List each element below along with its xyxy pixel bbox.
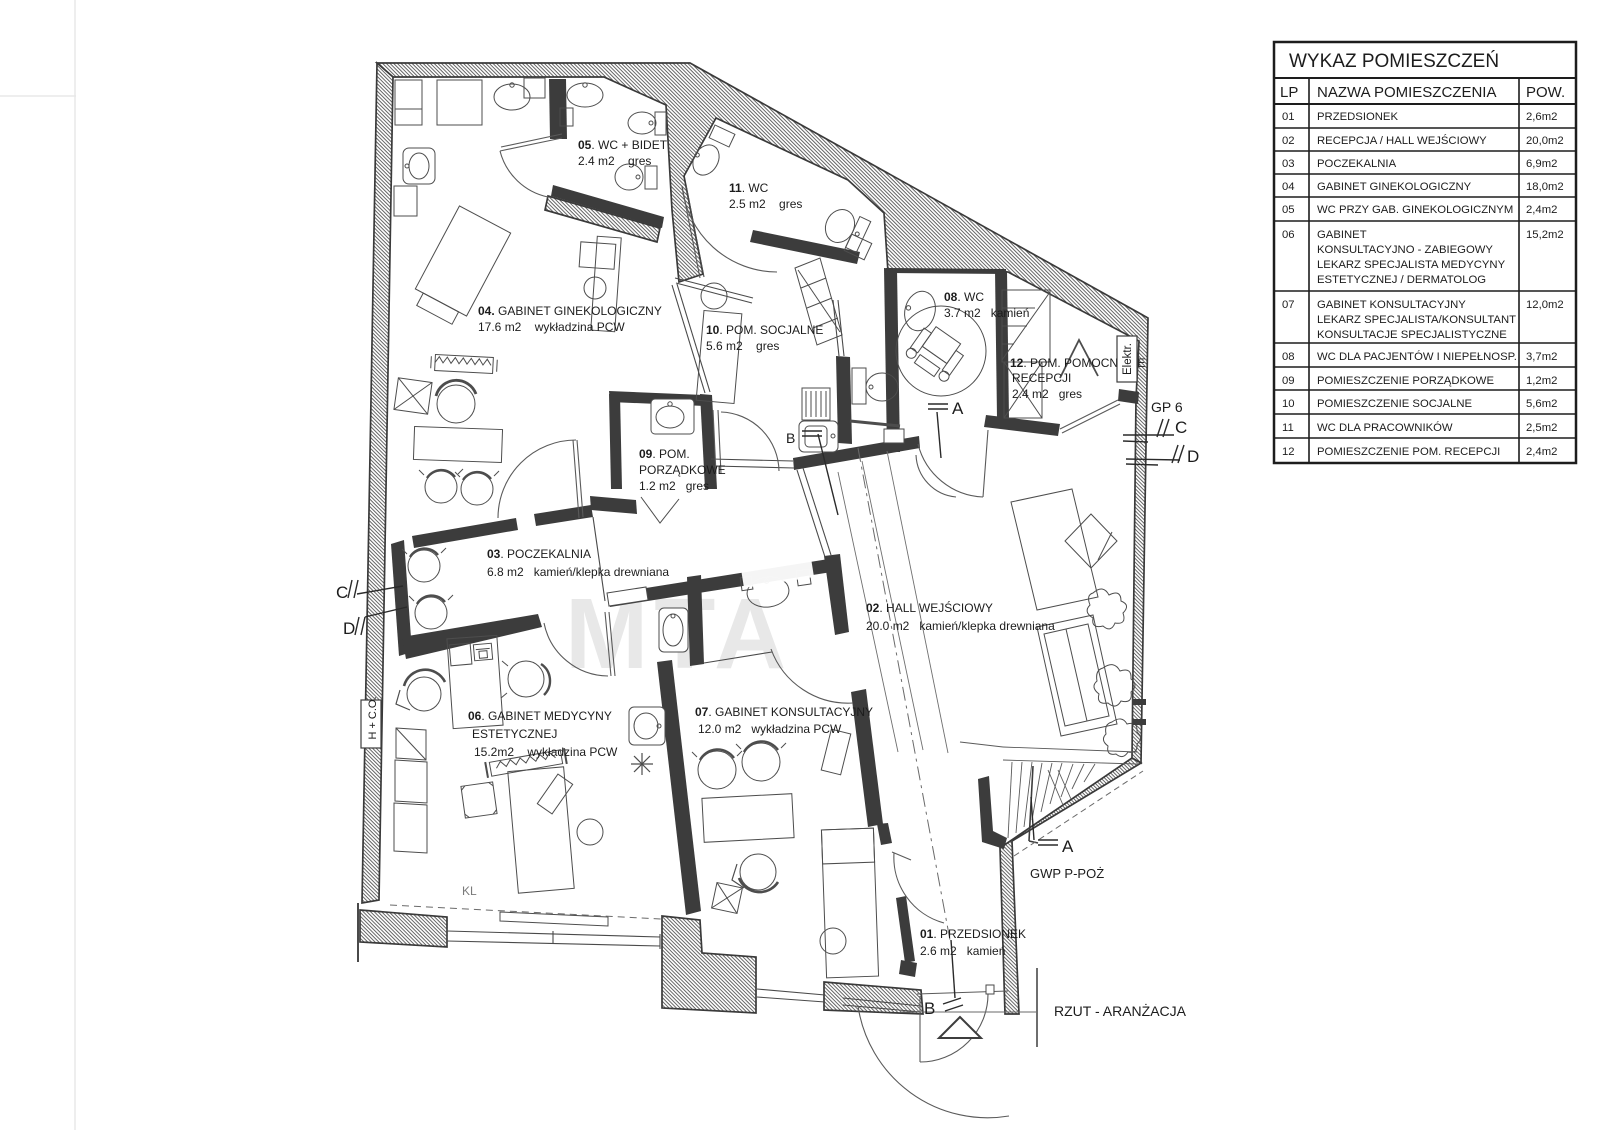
svg-text:A: A: [952, 399, 964, 418]
svg-text:6.8 m2 kamień/klepka drewnia: 6.8 m2 kamień/klepka drewniana: [487, 565, 669, 579]
svg-text:KL: KL: [462, 884, 477, 898]
svg-text:01. PRZEDSIONEK: 01. PRZEDSIONEK: [920, 927, 1026, 941]
svg-text:5.6 m2 gres: 5.6 m2 gres: [706, 339, 779, 353]
svg-text:WYKAZ POMIESZCZEŃ: WYKAZ POMIESZCZEŃ: [1289, 51, 1499, 72]
svg-text:20,0m2: 20,0m2: [1526, 135, 1564, 147]
svg-text:07: 07: [1282, 299, 1295, 311]
svg-text:A: A: [1062, 837, 1074, 856]
svg-text:H + C.O.: H + C.O.: [367, 696, 379, 739]
svg-text:D: D: [343, 619, 355, 638]
svg-text:05. WC + BIDET: 05. WC + BIDET: [578, 138, 668, 152]
svg-text:WC PRZY GAB. GINEKOLOGICZNYM: WC PRZY GAB. GINEKOLOGICZNYM: [1317, 204, 1513, 216]
svg-text:2,6m2: 2,6m2: [1526, 111, 1557, 123]
svg-text:GP 6: GP 6: [1151, 399, 1183, 415]
svg-text:GABINET KONSULTACYJNY: GABINET KONSULTACYJNY: [1317, 299, 1466, 311]
svg-text:02. HALL WEJŚCIOWY: 02. HALL WEJŚCIOWY: [866, 600, 993, 615]
svg-text:POMIESZCZENIE SOCJALNE: POMIESZCZENIE SOCJALNE: [1317, 398, 1473, 410]
svg-text:POW.: POW.: [1526, 84, 1565, 101]
svg-text:GABINET: GABINET: [1317, 229, 1367, 241]
svg-text:KONSULTACJE SPECJALISTYCZNE: KONSULTACJE SPECJALISTYCZNE: [1317, 329, 1507, 341]
svg-text:01: 01: [1282, 111, 1295, 123]
svg-text:POCZEKALNIA: POCZEKALNIA: [1317, 158, 1397, 170]
svg-text:3,7m2: 3,7m2: [1526, 351, 1557, 363]
svg-text:PORZĄDKOWE: PORZĄDKOWE: [639, 463, 726, 477]
svg-text:20.0 m2 kamień/klepka drewni: 20.0 m2 kamień/klepka drewniana: [866, 619, 1055, 633]
svg-text:C: C: [1175, 418, 1187, 437]
svg-text:D: D: [1187, 447, 1199, 466]
svg-text:05: 05: [1282, 204, 1295, 216]
svg-text:15.2m2 wykładzina PCW: 15.2m2 wykładzina PCW: [474, 745, 618, 759]
svg-text:2.4 m2 gres: 2.4 m2 gres: [1012, 387, 1082, 401]
svg-text:5,6m2: 5,6m2: [1526, 398, 1557, 410]
svg-text:ESTETYCZNEJ / DERMATOLOG: ESTETYCZNEJ / DERMATOLOG: [1317, 274, 1486, 286]
svg-text:2.6 m2 kamień: 2.6 m2 kamień: [920, 944, 1005, 958]
svg-text:RECEPCJI: RECEPCJI: [1012, 371, 1071, 385]
svg-text:1,2m2: 1,2m2: [1526, 375, 1557, 387]
svg-text:17.6 m2 wykładzina PCW: 17.6 m2 wykładzina PCW: [478, 320, 625, 334]
svg-text:6,9m2: 6,9m2: [1526, 158, 1557, 170]
svg-text:09. POM.: 09. POM.: [639, 447, 690, 461]
svg-text:GABINET GINEKOLOGICZNY: GABINET GINEKOLOGICZNY: [1317, 181, 1472, 193]
svg-text:POMIESZCZENIE PORZĄDKOWE: POMIESZCZENIE PORZĄDKOWE: [1317, 375, 1494, 387]
svg-text:2,4m2: 2,4m2: [1526, 446, 1557, 458]
svg-text:B: B: [786, 430, 795, 446]
svg-text:10: 10: [1282, 398, 1295, 410]
svg-text:02: 02: [1282, 135, 1295, 147]
svg-text:GWP P-POŻ: GWP P-POŻ: [1030, 866, 1104, 881]
svg-text:LP: LP: [1280, 84, 1298, 101]
svg-text:WC DLA PRACOWNIKÓW: WC DLA PRACOWNIKÓW: [1317, 421, 1453, 434]
svg-text:08. WC: 08. WC: [944, 290, 984, 304]
svg-text:B: B: [924, 999, 935, 1018]
svg-text:09: 09: [1282, 375, 1295, 387]
svg-text:LEKARZ SPECJALISTA MEDYCYNY: LEKARZ SPECJALISTA MEDYCYNY: [1317, 259, 1506, 271]
svg-text:03: 03: [1282, 158, 1295, 170]
svg-text:KONSULTACYJNO - ZABIEGOWY: KONSULTACYJNO - ZABIEGOWY: [1317, 244, 1493, 256]
svg-text:03. POCZEKALNIA: 03. POCZEKALNIA: [487, 547, 591, 561]
svg-text:RZUT - ARANŻACJA: RZUT - ARANŻACJA: [1054, 1002, 1187, 1019]
svg-text:11. WC: 11. WC: [729, 181, 769, 195]
svg-text:12,0m2: 12,0m2: [1526, 299, 1564, 311]
svg-text:2,4m2: 2,4m2: [1526, 204, 1557, 216]
svg-text:WC DLA PACJENTÓW I NIEPEŁNOSP: WC DLA PACJENTÓW I NIEPEŁNOSP.: [1317, 350, 1517, 363]
svg-text:12: 12: [1282, 446, 1295, 458]
svg-text:C: C: [336, 583, 348, 602]
svg-text:10. POM. SOCJALNE: 10. POM. SOCJALNE: [706, 323, 823, 337]
svg-text:2.4 m2 gres: 2.4 m2 gres: [578, 154, 651, 168]
svg-text:11: 11: [1282, 422, 1294, 434]
svg-text:04: 04: [1282, 181, 1295, 193]
svg-text:Elektr.: Elektr.: [1122, 343, 1134, 375]
svg-text:15,2m2: 15,2m2: [1526, 229, 1564, 241]
svg-text:LEKARZ SPECJALISTA/KONSULTANT: LEKARZ SPECJALISTA/KONSULTANT: [1317, 314, 1516, 326]
svg-text:NAZWA POMIESZCZENIA: NAZWA POMIESZCZENIA: [1317, 84, 1496, 101]
svg-text:RECEPCJA / HALL WEJŚCIOWY: RECEPCJA / HALL WEJŚCIOWY: [1317, 134, 1487, 147]
svg-text:2.5 m2 gres: 2.5 m2 gres: [729, 197, 802, 211]
svg-text:08: 08: [1282, 351, 1295, 363]
svg-text:POMIESZCZENIE POM. RECEPCJI: POMIESZCZENIE POM. RECEPCJI: [1317, 446, 1500, 458]
svg-text:12.0 m2 wykładzina PCW: 12.0 m2 wykładzina PCW: [698, 722, 842, 736]
svg-text:06: 06: [1282, 229, 1295, 241]
svg-text:1.2 m2 gres: 1.2 m2 gres: [639, 479, 709, 493]
svg-text:07. GABINET KONSULTACYJNY: 07. GABINET KONSULTACYJNY: [695, 705, 873, 719]
svg-text:PRZEDSIONEK: PRZEDSIONEK: [1317, 111, 1398, 123]
svg-text:2,5m2: 2,5m2: [1526, 422, 1557, 434]
svg-text:18,0m2: 18,0m2: [1526, 181, 1564, 193]
svg-text:04. GABINET GINEKOLOGICZNY: 04. GABINET GINEKOLOGICZNY: [478, 304, 662, 318]
svg-text:ESTETYCZNEJ: ESTETYCZNEJ: [472, 727, 557, 741]
svg-text:06. GABINET MEDYCYNY: 06. GABINET MEDYCYNY: [468, 709, 612, 723]
svg-text:3.7 m2 kamień: 3.7 m2 kamień: [944, 306, 1029, 320]
